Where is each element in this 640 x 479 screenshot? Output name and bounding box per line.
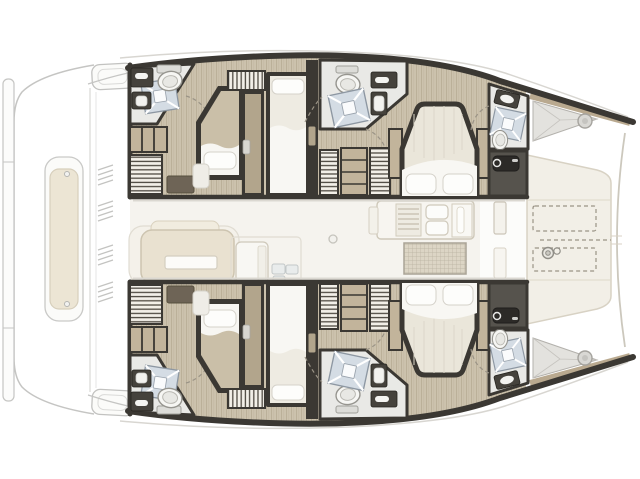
hanger-locker-icon	[320, 150, 338, 195]
shower-icon	[328, 88, 370, 127]
coffee-table	[165, 256, 217, 269]
floor-plan	[0, 0, 640, 479]
foredeck	[527, 133, 625, 347]
deck-fitting	[65, 302, 70, 307]
bed-divider	[242, 90, 264, 197]
bow-crossbeam	[617, 133, 625, 347]
rug	[167, 176, 194, 193]
hanger-locker-icon	[228, 71, 265, 90]
hanger-locker-icon	[130, 155, 162, 194]
deck-fitting	[65, 172, 70, 177]
vent-icon	[98, 165, 113, 302]
foredeck-door	[494, 202, 506, 234]
stove	[396, 204, 421, 236]
swim-platform	[3, 79, 14, 401]
floor-mat	[404, 243, 466, 274]
sink-icon	[426, 205, 448, 219]
technical-room	[489, 151, 527, 196]
deck-fitting	[329, 235, 337, 243]
island-double-bed	[402, 104, 477, 196]
fridge-box	[286, 265, 298, 274]
aft-bench	[50, 169, 78, 309]
single-bed	[266, 72, 310, 197]
hanger-locker-icon	[370, 148, 390, 195]
cabinet	[130, 127, 167, 152]
saloon	[129, 198, 526, 287]
bed-step	[193, 164, 209, 188]
floor-plan-svg	[0, 0, 640, 479]
toilet-icon	[492, 130, 507, 149]
fridge-box	[272, 264, 285, 274]
stern-deck	[3, 63, 135, 416]
sink-icon	[426, 221, 448, 235]
